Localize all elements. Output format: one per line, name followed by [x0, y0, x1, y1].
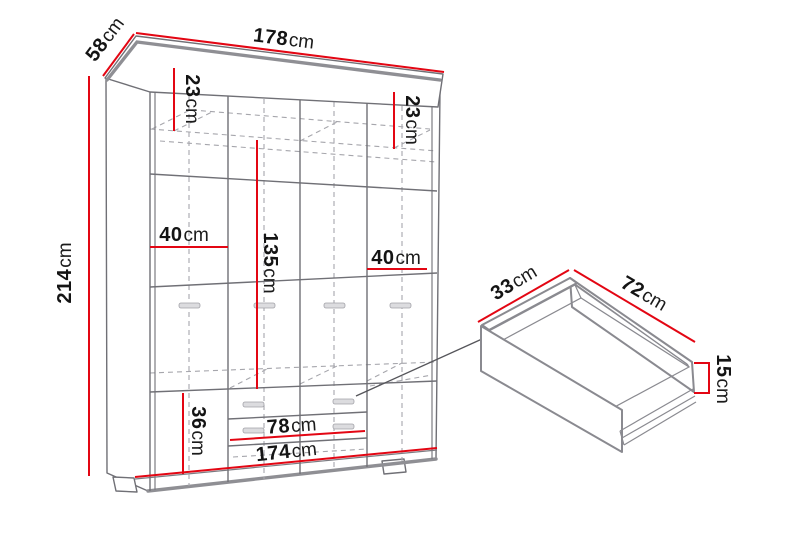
- dim-shelf-left-label: 40cm: [159, 224, 209, 246]
- dim-top-right-label: 23cm: [401, 95, 423, 145]
- drawer-handle-bottom-left: [243, 428, 264, 433]
- drawer-handle-top-right: [333, 399, 354, 404]
- dim-drawer-width-label: 78cm: [266, 413, 317, 438]
- wardrobe-foot-left: [113, 477, 137, 492]
- dim-shelf-right-label: 40cm: [371, 247, 421, 269]
- drawer-handle-bottom-right: [333, 424, 354, 429]
- drawer-front-panel: [481, 326, 622, 452]
- dim-height-label: 214cm: [54, 242, 76, 303]
- door-handle-1: [179, 303, 200, 308]
- dim-middle-label: 135cm: [259, 232, 281, 293]
- dim-drawer-top-width-label: 72cm: [617, 272, 671, 316]
- dimension-diagram-page: 58cm 178cm 214cm 23cm 23cm 40cm 135cm 40…: [0, 0, 800, 533]
- dimension-diagram: 58cm 178cm 214cm 23cm 23cm 40cm 135cm 40…: [0, 0, 800, 533]
- dim-drawer-height-label: 15cm: [712, 354, 734, 404]
- door-handle-4: [390, 303, 411, 308]
- dim-drawer-height-bracket: [694, 363, 709, 393]
- door-handle-3: [324, 303, 345, 308]
- dim-top-left-label: 23cm: [181, 74, 203, 124]
- dim-bottom-section-label: 36cm: [187, 406, 209, 456]
- drawer-handle-top-left: [243, 402, 264, 407]
